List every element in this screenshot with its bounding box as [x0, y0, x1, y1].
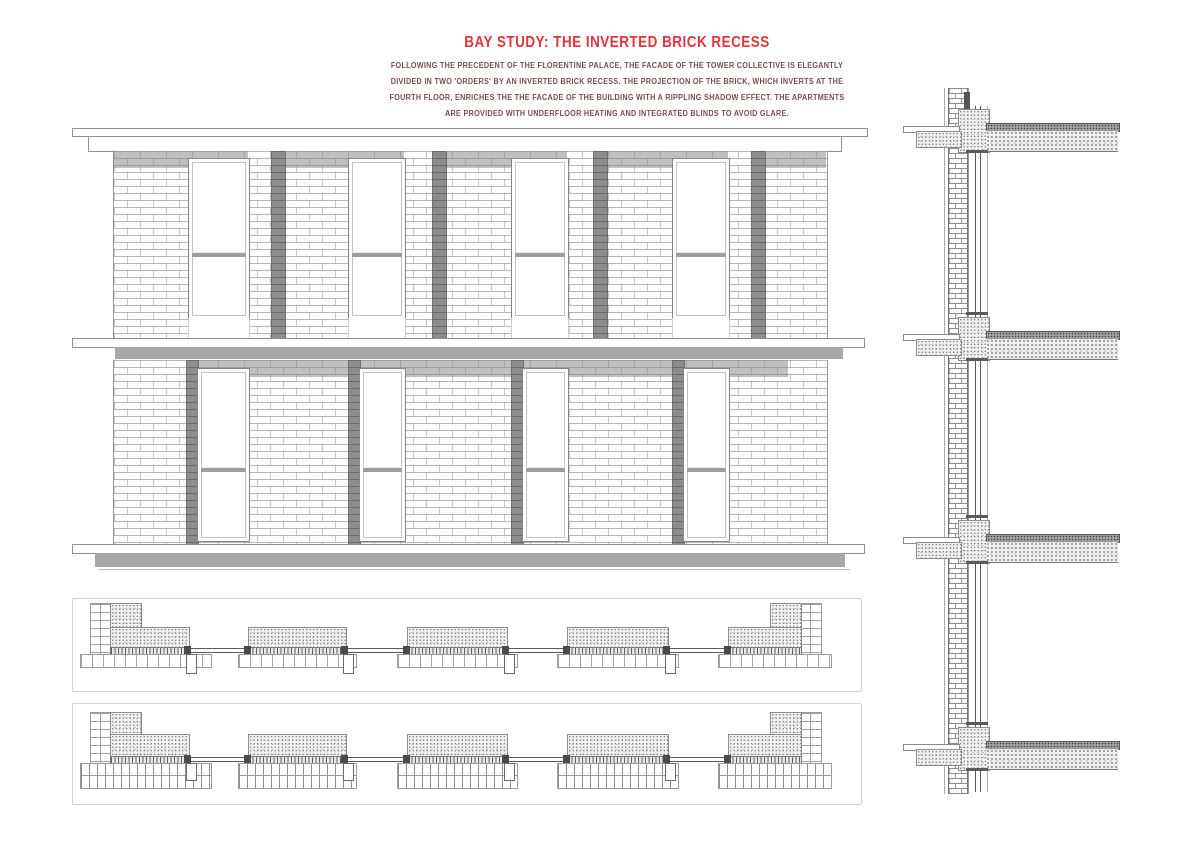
window	[359, 368, 406, 542]
head-profile	[966, 312, 988, 315]
insulation-block	[407, 734, 508, 758]
insulation-block	[407, 627, 508, 649]
insulation-block	[728, 734, 802, 758]
mullion-tab	[665, 763, 676, 781]
head-shadow-band	[764, 151, 826, 168]
page-title: BAY STUDY: THE INVERTED BRICK RECESS	[365, 34, 869, 52]
mullion	[244, 646, 251, 654]
mullion	[502, 646, 509, 654]
mullion-tab	[343, 763, 354, 781]
mullion	[724, 646, 731, 654]
mullion	[663, 755, 670, 763]
mullion	[663, 646, 670, 654]
mullion-tab	[186, 763, 197, 781]
glazing-line	[345, 757, 407, 762]
window-apron	[188, 318, 250, 338]
mullion	[244, 755, 251, 763]
projected-brick-course	[238, 763, 357, 789]
cornice-fascia	[88, 136, 842, 152]
mullion	[563, 755, 570, 763]
recess-strip	[432, 151, 447, 338]
mullion	[341, 646, 348, 654]
window	[188, 158, 250, 320]
projected-brick-course	[557, 763, 679, 789]
window	[672, 158, 730, 320]
mullion	[184, 646, 191, 654]
intro-line-3: FOURTH FLOOR, ENRICHES THE THE FACADE OF…	[365, 89, 869, 105]
inner-brick-course	[557, 654, 679, 668]
window	[683, 368, 730, 542]
floor-slab	[986, 748, 1118, 770]
mullion-tab	[343, 654, 354, 674]
mullion-tab	[665, 654, 676, 674]
floor-slab	[986, 338, 1118, 360]
insulation-block	[567, 734, 669, 758]
mullion	[341, 755, 348, 763]
mullion	[724, 755, 731, 763]
sill-profile	[966, 358, 988, 361]
brick-sill	[916, 749, 962, 766]
heading-block: BAY STUDY: THE INVERTED BRICK RECESS FOL…	[365, 34, 869, 121]
head-profile	[966, 515, 988, 518]
corner-brick-return	[800, 712, 822, 770]
window	[348, 158, 406, 320]
recess-strip	[751, 151, 766, 338]
frame-line	[987, 106, 988, 792]
drawing-sheet: BAY STUDY: THE INVERTED BRICK RECESS FOL…	[0, 0, 1200, 848]
insulation-block	[248, 627, 347, 649]
insulation-block	[248, 734, 347, 758]
glazing-line	[345, 648, 407, 653]
corner-brick-return	[90, 712, 112, 770]
glazing-line	[188, 648, 248, 653]
brick-sill	[916, 339, 962, 356]
projected-brick-course	[397, 763, 518, 789]
insulation-block	[567, 627, 669, 649]
cavity-line	[968, 88, 969, 794]
window	[511, 158, 569, 320]
intro-line-4: ARE PROVIDED WITH UNDERFLOOR HEATING AND…	[365, 105, 869, 121]
sill-profile	[966, 150, 988, 153]
window	[197, 368, 250, 542]
section-brick-wall	[948, 88, 968, 794]
window-apron	[348, 318, 406, 338]
inner-brick-course	[718, 654, 832, 668]
intro-line-2: DIVIDED IN TWO 'ORDERS' BY AN INVERTED B…	[365, 73, 869, 89]
intro-line-1: FOLLOWING THE PRECEDENT OF THE FLORENTIN…	[365, 57, 869, 73]
insulation-block	[110, 627, 190, 649]
inner-brick-course	[238, 654, 357, 668]
mullion	[403, 755, 410, 763]
window-apron	[511, 318, 569, 338]
sill-profile	[966, 768, 988, 771]
mullion	[184, 755, 191, 763]
ground-line	[98, 569, 850, 570]
recess-strip	[271, 151, 286, 338]
insulation-block	[110, 734, 190, 758]
mullion-tab	[504, 763, 515, 781]
brick-sill	[916, 542, 962, 559]
slab-shadow-band	[115, 347, 843, 359]
glazing-line	[506, 757, 567, 762]
glazing-line	[975, 106, 976, 792]
window-apron	[672, 318, 730, 338]
mullion	[563, 646, 570, 654]
mullion	[403, 646, 410, 654]
inner-brick-course	[397, 654, 518, 668]
mullion-tab	[186, 654, 197, 674]
corner-brick-return	[800, 603, 822, 655]
mullion-tab	[504, 654, 515, 674]
glazing-line	[980, 106, 981, 792]
floor-slab	[986, 541, 1118, 563]
glazing-line	[506, 648, 567, 653]
brick-sill	[916, 131, 962, 148]
projected-brick-course	[718, 763, 832, 789]
window	[522, 368, 569, 542]
sill-profile	[966, 561, 988, 564]
insulation-block	[728, 627, 802, 649]
recess-strip	[593, 151, 608, 338]
floor-slab	[986, 130, 1118, 152]
glazing-line	[188, 757, 248, 762]
inner-face-line	[944, 88, 945, 794]
slab-shadow-band	[95, 553, 845, 567]
mullion	[502, 755, 509, 763]
head-profile	[966, 722, 988, 725]
corner-brick-return	[90, 603, 112, 655]
glazing-line	[667, 648, 728, 653]
glazing-line	[667, 757, 728, 762]
